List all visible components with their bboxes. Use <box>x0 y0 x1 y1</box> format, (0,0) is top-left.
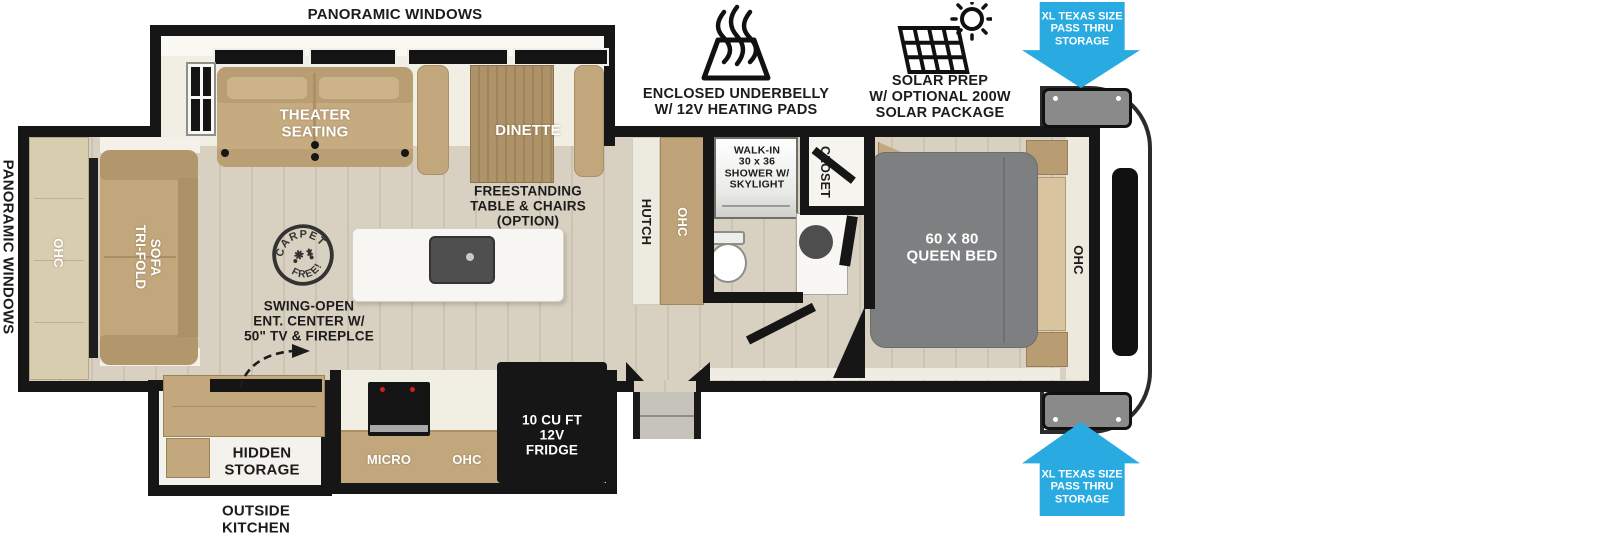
underbelly-label: ENCLOSED UNDERBELLY W/ 12V HEATING PADS <box>643 87 829 119</box>
recliner-handle-icon <box>311 141 319 149</box>
storage-cabinet <box>166 438 210 478</box>
pass-thru-hatch-bottom <box>1042 392 1132 430</box>
hatch-screw-icon <box>1053 96 1058 101</box>
queen-bed-label: 60 X 80 QUEEN BED <box>907 232 998 265</box>
hatch-screw-icon <box>1053 417 1058 422</box>
panoramic-windows-left-label: PANORAMIC WINDOWS <box>0 160 15 335</box>
burner-knob-icon <box>410 387 415 392</box>
faucet-icon <box>466 253 474 261</box>
solar-label: SOLAR PREP W/ OPTIONAL 200W SOLAR PACKAG… <box>869 74 1011 122</box>
bathroom-wall-bottom <box>703 292 803 303</box>
kitchen-island <box>352 228 564 302</box>
vanity-sink-icon <box>799 225 833 259</box>
burner-knob-icon <box>380 387 385 392</box>
island-sink <box>429 236 495 284</box>
dinette-bench <box>574 65 604 177</box>
fridge-label: 10 CU FT 12V FRIDGE <box>522 414 582 459</box>
dinette-bench <box>417 65 449 175</box>
swing-open-arrow-icon <box>230 342 316 394</box>
hidden-storage-label: HIDDEN STORAGE <box>224 446 299 479</box>
rear-ohc-label: OHC <box>51 238 65 268</box>
hutch-label: HUTCH <box>639 199 653 246</box>
pass-thru-hatch-top <box>1042 88 1132 128</box>
entry-door-opening <box>634 380 696 392</box>
outside-kitchen-label: OUTSIDE KITCHEN <box>222 504 290 537</box>
freestanding-option-label: FREESTANDING TABLE & CHAIRS (OPTION) <box>470 185 586 230</box>
closet-wall-bottom <box>800 206 866 215</box>
rv-floorplan-canvas: CARPET FREE! <box>0 0 1600 539</box>
micro-label: MICRO <box>367 453 411 467</box>
panoramic-window-strip <box>513 48 609 66</box>
heating-pad-icon <box>694 4 778 84</box>
kitchen-ohc-label: OHC <box>452 453 482 467</box>
toilet-bowl <box>709 243 747 283</box>
pass-thru-bottom-label: XL TEXAS SIZE PASS THRU STORAGE <box>1041 469 1122 506</box>
pass-thru-top-label: XL TEXAS SIZE PASS THRU STORAGE <box>1041 11 1122 48</box>
closet-wall-left <box>800 137 809 215</box>
panoramic-window-strip <box>407 48 509 66</box>
bedroom-wall <box>864 137 875 309</box>
panoramic-windows-top-label: PANORAMIC WINDOWS <box>308 7 483 24</box>
recliner-handle-icon <box>221 149 229 157</box>
bedroom-slide-band <box>700 368 1060 380</box>
bed-platform <box>1036 177 1066 331</box>
solar-panel-icon <box>886 2 992 78</box>
hatch-screw-icon <box>1116 417 1121 422</box>
panoramic-window-strip <box>213 48 305 66</box>
hutch-ohc-label: OHC <box>675 207 689 237</box>
swing-open-label: SWING-OPEN ENT. CENTER W/ 50" TV & FIREP… <box>244 300 374 345</box>
tri-fold-sofa-label: TRI-FOLD SOFA <box>132 225 162 290</box>
hatch-screw-icon <box>1116 96 1121 101</box>
range-stove <box>368 382 430 436</box>
tv-strip <box>89 158 98 358</box>
side-window <box>186 62 216 136</box>
panoramic-window-strip <box>309 48 397 66</box>
closet-label: CLOSET <box>817 146 831 198</box>
theater-seating-label: THEATER SEATING <box>279 108 350 141</box>
dinette-label: DINETTE <box>495 123 561 140</box>
recliner-handle-icon <box>311 153 319 161</box>
entry-steps <box>633 391 701 439</box>
bedroom-ohc-label: OHC <box>1071 245 1085 275</box>
front-window <box>1112 168 1138 356</box>
bathroom-wall-left <box>703 137 714 297</box>
shower-label: WALK-IN 30 x 36 SHOWER W/ SKYLIGHT <box>725 145 790 190</box>
recliner-handle-icon <box>401 149 409 157</box>
